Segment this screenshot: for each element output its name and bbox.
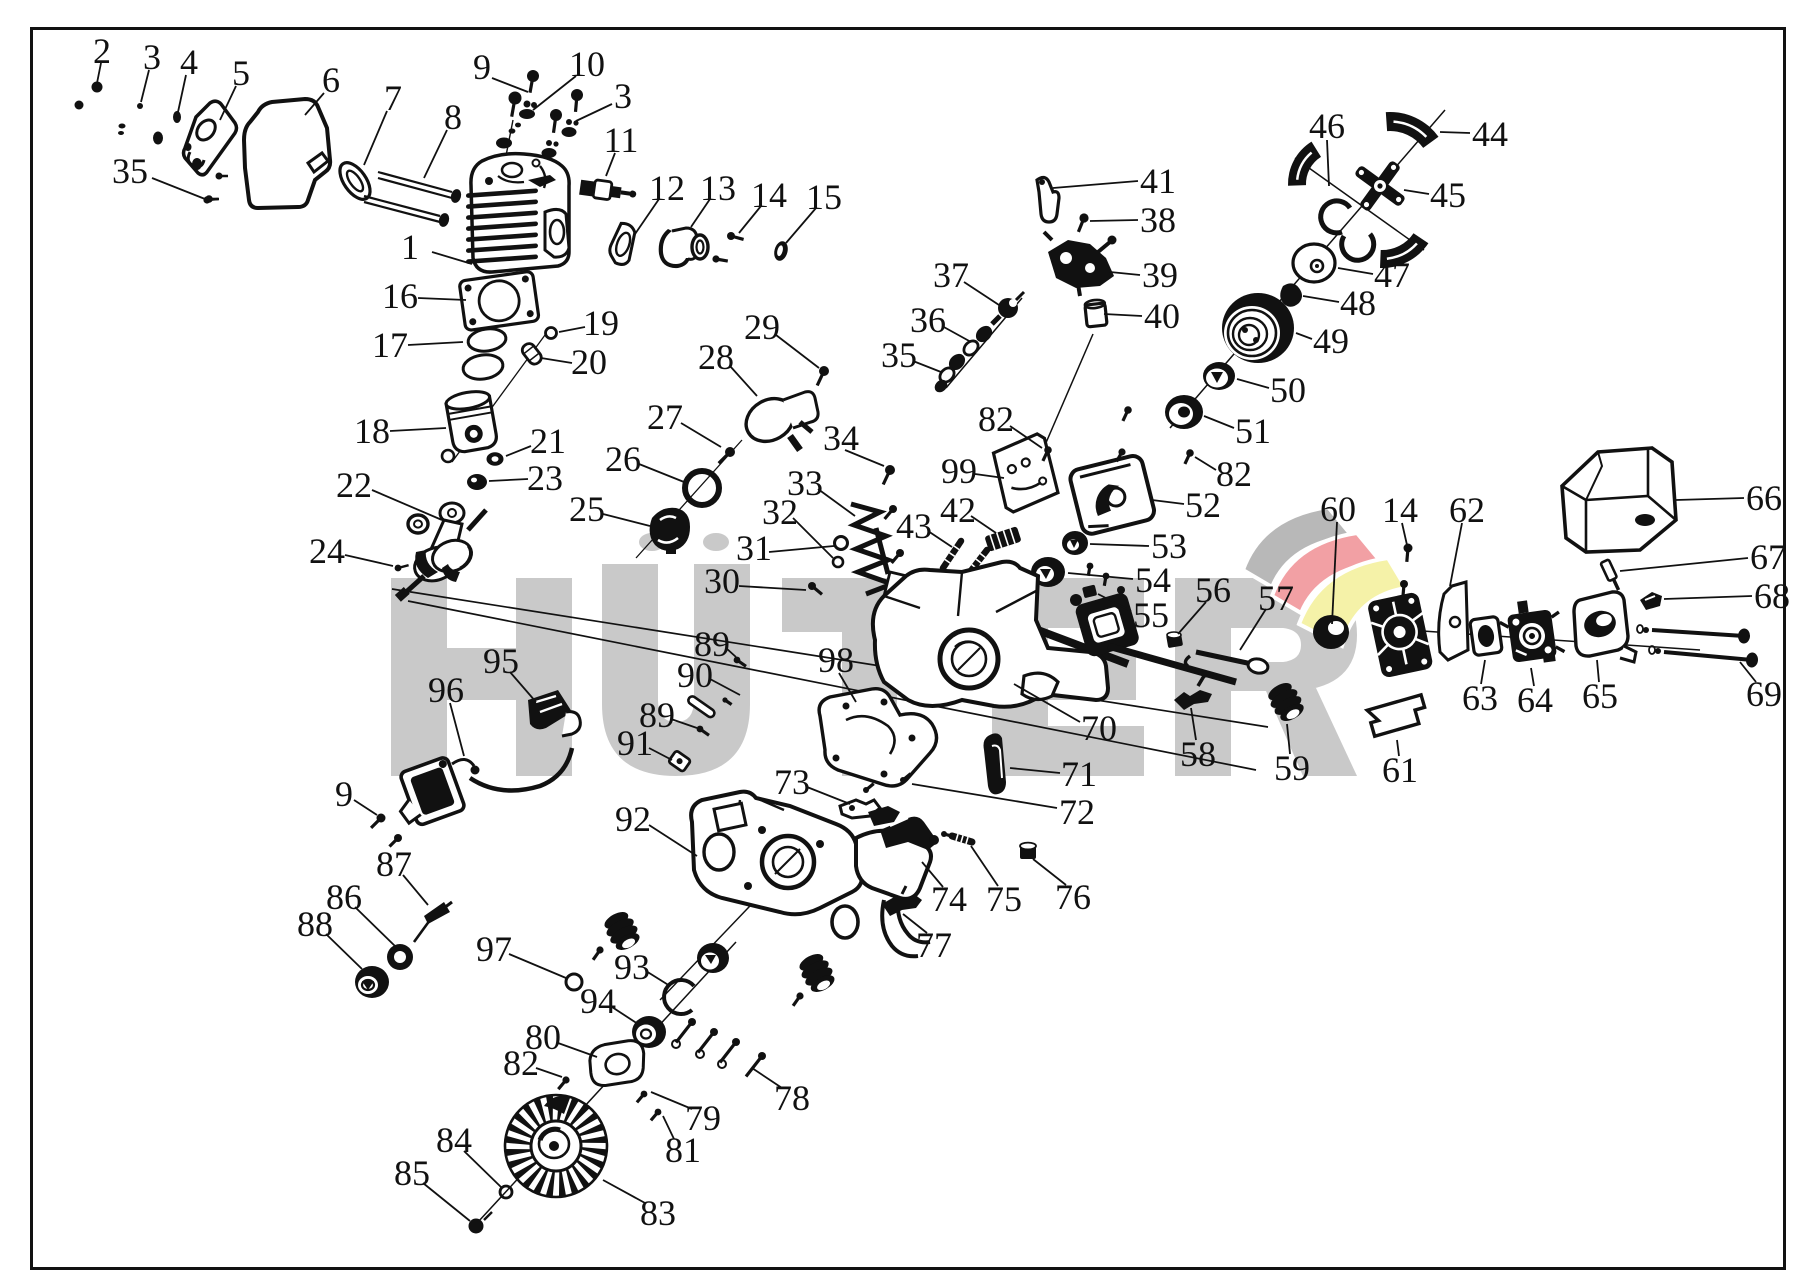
svg-text:19: 19 [583,303,619,343]
svg-text:57: 57 [1258,578,1294,618]
svg-text:23: 23 [527,458,563,498]
svg-text:60: 60 [1320,489,1356,529]
svg-text:88: 88 [297,904,333,944]
svg-text:91: 91 [617,723,653,763]
svg-text:78: 78 [774,1078,810,1118]
svg-text:3: 3 [143,37,161,77]
svg-text:14: 14 [751,175,787,215]
svg-text:66: 66 [1746,478,1782,518]
svg-text:59: 59 [1274,748,1310,788]
svg-text:5: 5 [232,53,250,93]
svg-text:64: 64 [1517,680,1553,720]
svg-text:75: 75 [986,879,1022,919]
svg-text:9: 9 [335,774,353,814]
svg-text:27: 27 [647,397,683,437]
svg-text:69: 69 [1746,674,1782,714]
svg-text:50: 50 [1270,370,1306,410]
svg-text:96: 96 [428,670,464,710]
svg-text:73: 73 [774,762,810,802]
svg-text:15: 15 [806,177,842,217]
svg-text:76: 76 [1055,877,1091,917]
svg-text:1: 1 [401,227,419,267]
svg-text:31: 31 [736,528,772,568]
svg-text:99: 99 [941,451,977,491]
svg-text:65: 65 [1582,676,1618,716]
svg-text:18: 18 [354,411,390,451]
svg-text:16: 16 [382,276,418,316]
svg-text:21: 21 [530,421,566,461]
svg-text:6: 6 [322,60,340,100]
svg-text:90: 90 [677,655,713,695]
svg-text:54: 54 [1135,560,1171,600]
svg-text:67: 67 [1750,537,1786,577]
svg-text:82: 82 [503,1043,539,1083]
svg-text:11: 11 [604,120,639,160]
svg-text:26: 26 [605,439,641,479]
svg-text:40: 40 [1144,296,1180,336]
svg-text:82: 82 [978,399,1014,439]
svg-text:56: 56 [1195,570,1231,610]
svg-text:93: 93 [614,947,650,987]
svg-text:49: 49 [1313,321,1349,361]
svg-text:14: 14 [1382,490,1418,530]
svg-text:42: 42 [940,490,976,530]
svg-text:2: 2 [93,31,111,71]
svg-text:55: 55 [1133,595,1169,635]
svg-text:33: 33 [787,463,823,503]
svg-text:94: 94 [580,981,616,1021]
svg-text:28: 28 [698,337,734,377]
svg-text:8: 8 [444,97,462,137]
svg-text:22: 22 [336,465,372,505]
svg-text:45: 45 [1430,175,1466,215]
svg-text:20: 20 [571,342,607,382]
svg-text:97: 97 [476,929,512,969]
svg-text:46: 46 [1309,106,1345,146]
svg-text:10: 10 [569,44,605,84]
svg-text:34: 34 [823,418,859,458]
svg-text:9: 9 [473,47,491,87]
svg-text:41: 41 [1140,161,1176,201]
svg-text:13: 13 [700,168,736,208]
svg-text:58: 58 [1180,734,1216,774]
svg-text:85: 85 [394,1153,430,1193]
svg-text:12: 12 [649,168,685,208]
svg-text:35: 35 [112,151,148,191]
svg-text:74: 74 [931,879,967,919]
svg-text:61: 61 [1382,750,1418,790]
svg-text:68: 68 [1754,576,1790,616]
svg-text:47: 47 [1374,255,1410,295]
svg-text:63: 63 [1462,678,1498,718]
svg-text:30: 30 [704,561,740,601]
svg-text:83: 83 [640,1193,676,1233]
svg-text:71: 71 [1061,754,1097,794]
svg-text:44: 44 [1472,114,1508,154]
svg-text:43: 43 [896,506,932,546]
svg-text:70: 70 [1081,708,1117,748]
svg-text:25: 25 [569,489,605,529]
svg-text:36: 36 [910,300,946,340]
svg-text:48: 48 [1340,283,1376,323]
svg-text:4: 4 [180,42,198,82]
svg-text:98: 98 [818,640,854,680]
svg-text:17: 17 [372,325,408,365]
svg-text:92: 92 [615,799,651,839]
svg-text:7: 7 [384,78,402,118]
svg-text:77: 77 [916,925,952,965]
svg-text:82: 82 [1216,454,1252,494]
svg-text:81: 81 [665,1130,701,1170]
svg-text:35: 35 [881,335,917,375]
svg-text:24: 24 [309,531,345,571]
svg-text:39: 39 [1142,255,1178,295]
svg-text:29: 29 [744,307,780,347]
svg-text:38: 38 [1140,200,1176,240]
svg-text:62: 62 [1449,490,1485,530]
svg-text:72: 72 [1059,792,1095,832]
svg-text:52: 52 [1185,485,1221,525]
svg-text:51: 51 [1235,411,1271,451]
svg-text:95: 95 [483,641,519,681]
svg-text:87: 87 [376,844,412,884]
svg-text:84: 84 [436,1120,472,1160]
svg-text:3: 3 [614,76,632,116]
svg-text:37: 37 [933,255,969,295]
